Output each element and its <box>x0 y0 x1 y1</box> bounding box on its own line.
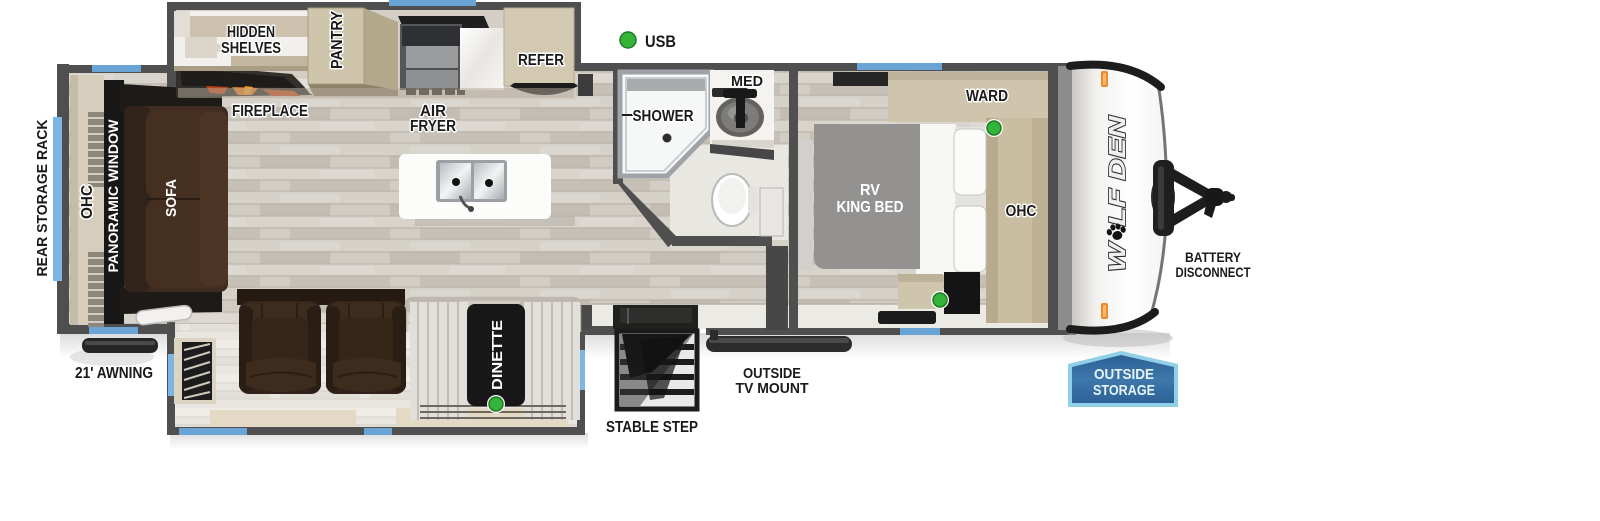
svg-text:PANORAMIC WINDOW: PANORAMIC WINDOW <box>106 119 121 272</box>
svg-text:HIDDEN: HIDDEN <box>227 24 275 41</box>
svg-text:FRYER: FRYER <box>410 118 456 135</box>
svg-text:STABLE STEP: STABLE STEP <box>606 419 698 436</box>
svg-text:KING BED: KING BED <box>837 199 904 216</box>
svg-text:RV: RV <box>860 182 881 199</box>
svg-text:FIREPLACE: FIREPLACE <box>232 103 308 120</box>
svg-text:USB: USB <box>645 32 676 51</box>
svg-text:REFER: REFER <box>518 52 564 69</box>
svg-text:OHC: OHC <box>79 185 96 219</box>
svg-text:TV MOUNT: TV MOUNT <box>736 380 809 397</box>
svg-text:SHOWER: SHOWER <box>633 108 694 125</box>
svg-text:DISCONNECT: DISCONNECT <box>1176 264 1251 280</box>
svg-text:DINETTE: DINETTE <box>489 320 506 390</box>
svg-text:STORAGE: STORAGE <box>1093 382 1155 399</box>
svg-text:21' AWNING: 21' AWNING <box>75 365 153 382</box>
svg-text:MED: MED <box>731 73 763 90</box>
svg-text:W LF DEN: W LF DEN <box>1104 115 1130 272</box>
svg-text:WARD: WARD <box>966 88 1008 105</box>
svg-text:OUTSIDE: OUTSIDE <box>1094 366 1154 383</box>
svg-text:BATTERY: BATTERY <box>1185 249 1242 265</box>
svg-text:SOFA: SOFA <box>163 179 180 217</box>
svg-text:REAR STORAGE RACK: REAR STORAGE RACK <box>34 119 51 276</box>
svg-text:OHC: OHC <box>1006 203 1037 220</box>
svg-text:PANTRY: PANTRY <box>329 11 346 69</box>
svg-text:SHELVES: SHELVES <box>221 40 281 57</box>
